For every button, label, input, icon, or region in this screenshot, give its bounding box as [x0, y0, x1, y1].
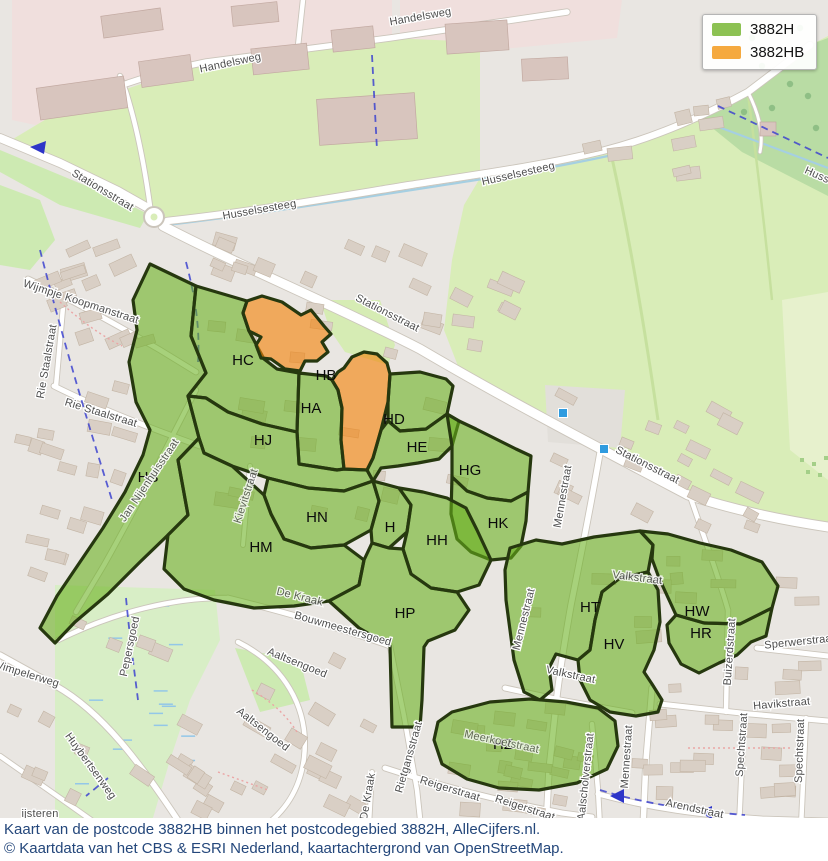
zone-label: HB	[316, 367, 337, 384]
zone-label: HA	[301, 400, 322, 417]
building	[86, 463, 100, 478]
building	[772, 724, 791, 733]
zone-label: HE	[407, 439, 428, 456]
zone-label: HH	[426, 532, 448, 549]
zone-label: HP	[395, 605, 416, 622]
tree-icon	[805, 93, 811, 99]
street-label: Spechtstraat	[793, 719, 807, 784]
zone-label: HJ	[254, 432, 272, 449]
building	[705, 715, 719, 724]
tree-icon	[769, 105, 775, 111]
building	[553, 794, 568, 806]
zone-label: HM	[249, 539, 272, 556]
screenshot-root: HCHBHAHDHEHGHJHSHNHMHHHHKHPHTHVHWHRHZHan…	[0, 0, 828, 861]
zone-label: HK	[488, 515, 509, 532]
building	[735, 667, 748, 680]
building	[693, 105, 709, 116]
legend-label: 3882HB	[750, 44, 804, 61]
tree-icon	[787, 81, 793, 87]
legend-item-3882hb: 3882HB	[712, 44, 804, 61]
building	[317, 93, 418, 146]
zone-label: HR	[690, 625, 712, 642]
orchard-dot	[818, 473, 822, 477]
legend-swatch-green	[712, 23, 741, 36]
legend-item-3882h: 3882H	[712, 21, 804, 38]
building	[644, 765, 663, 776]
building	[607, 146, 633, 162]
legend-swatch-orange	[712, 46, 741, 59]
building	[231, 2, 279, 27]
building	[795, 597, 819, 606]
building	[775, 681, 800, 695]
zone-label: HT	[580, 599, 600, 616]
roundabout-island	[151, 214, 158, 221]
zone-label: HG	[459, 462, 482, 479]
orchard-dot	[806, 470, 810, 474]
building	[761, 747, 782, 761]
tree-icon	[741, 109, 747, 115]
building	[798, 661, 821, 671]
orchard-dot	[800, 458, 804, 462]
building	[445, 20, 509, 54]
zone-label: HC	[232, 352, 254, 369]
zone-label: HD	[383, 411, 405, 428]
building	[467, 339, 483, 352]
legend-label: 3882H	[750, 21, 794, 38]
bus-stop-icon	[600, 445, 609, 454]
building	[783, 669, 802, 680]
zone-label: HW	[685, 603, 711, 620]
zone-label: HV	[604, 636, 625, 653]
building	[669, 684, 682, 693]
tree-icon	[813, 125, 819, 131]
caption-line-1: Kaart van de postcode 3882HB binnen het …	[4, 820, 828, 839]
building	[774, 782, 795, 796]
building	[331, 26, 375, 52]
zone-label: HN	[306, 509, 328, 526]
caption-line-2: © Kaartdata van het CBS & ESRI Nederland…	[4, 839, 828, 858]
building	[460, 802, 481, 817]
building	[760, 122, 776, 136]
map-caption: Kaart van de postcode 3882HB binnen het …	[0, 818, 828, 861]
building	[521, 57, 568, 81]
building	[680, 760, 705, 772]
map-canvas[interactable]: HCHBHAHDHEHGHJHSHNHMHHHHKHPHTHVHWHRHZHan…	[0, 0, 828, 861]
zone-label: H	[385, 519, 396, 536]
building	[452, 314, 475, 328]
orchard-dot	[812, 462, 816, 466]
orchard-dot	[824, 456, 828, 460]
bus-stop-icon	[559, 409, 568, 418]
legend: 3882H 3882HB	[702, 14, 817, 70]
building	[422, 312, 442, 328]
